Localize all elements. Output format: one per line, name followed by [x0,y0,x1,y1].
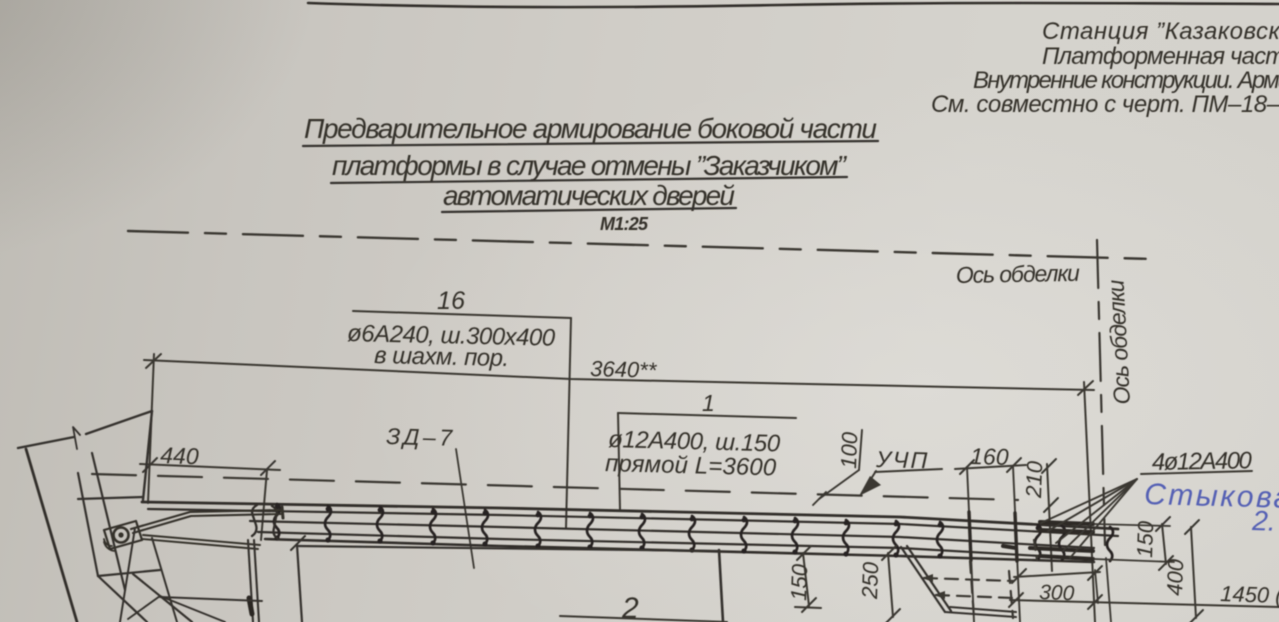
svg-text:440: 440 [160,442,199,469]
svg-text:210: 210 [1021,460,1047,499]
svg-text:100: 100 [836,431,862,469]
svg-text:прямой L=3600: прямой L=3600 [605,450,777,481]
svg-text:4ø12А400: 4ø12А400 [1152,447,1253,476]
svg-text:160: 160 [970,443,1009,470]
svg-text:М1:25: М1:25 [600,214,649,234]
svg-text:автоматических дверей: автоматических дверей [443,180,735,211]
svg-text:ЗД–7: ЗД–7 [386,423,454,451]
svg-text:Внутренние конструкции. Армиро: Внутренние конструкции. Армирование [973,67,1279,94]
svg-text:1450 (: 1450 ( [1220,581,1279,608]
svg-text:Станция ”Казаковская: Станция ”Казаковская [1042,18,1279,45]
svg-text:Предварительное армирование б: Предварительное армирование боковой част… [304,113,877,144]
svg-text:2.: 2. [1251,505,1276,537]
svg-text:См. совместно с черт. ПМ–18–5: См. совместно с черт. ПМ–18–5 [931,91,1279,118]
svg-text:16: 16 [437,287,465,315]
svg-text:150: 150 [786,563,812,601]
svg-text:Ось обделки: Ось обделки [956,260,1081,288]
svg-text:платформы в случае отмены ”Зак: платформы в случае отмены ”Заказчиком” [332,150,848,181]
svg-text:3640**: 3640** [590,356,658,383]
svg-text:400: 400 [1162,558,1188,596]
svg-text:Платформенная часть: Платформенная часть [1042,43,1279,70]
svg-text:250: 250 [857,561,883,600]
svg-text:1: 1 [702,390,715,416]
svg-text:в шахм. пор.: в шахм. пор. [374,342,510,372]
svg-text:Ось обделки: Ось обделки [1102,279,1135,405]
